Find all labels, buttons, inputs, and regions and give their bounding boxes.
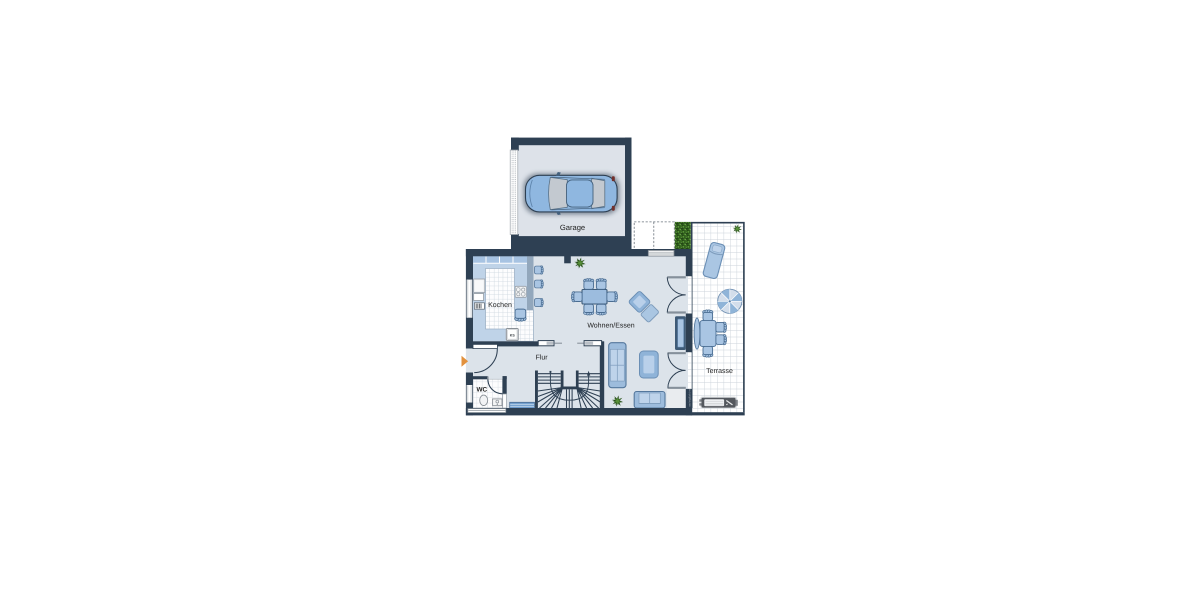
svg-text:KS: KS bbox=[510, 334, 516, 338]
svg-text:Terrasse: Terrasse bbox=[706, 368, 733, 375]
svg-text:WC: WC bbox=[476, 386, 487, 393]
svg-text:wohnglück.immo: wohnglück.immo bbox=[687, 385, 691, 406]
svg-text:Garage: Garage bbox=[560, 223, 585, 232]
svg-text:Kochen: Kochen bbox=[488, 301, 512, 309]
svg-text:Flur: Flur bbox=[536, 354, 549, 362]
svg-text:Wohnen/Essen: Wohnen/Essen bbox=[587, 322, 634, 330]
